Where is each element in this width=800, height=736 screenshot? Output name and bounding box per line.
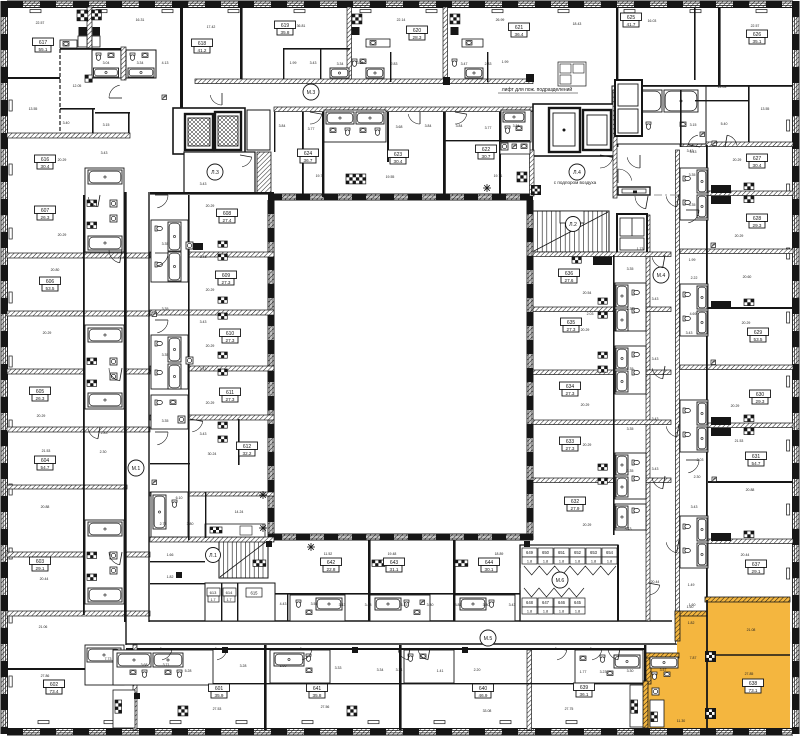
- svg-text:651: 651: [558, 550, 566, 555]
- svg-text:27.86: 27.86: [41, 674, 50, 678]
- svg-text:3.43: 3.43: [652, 297, 659, 301]
- svg-text:26.3: 26.3: [41, 215, 50, 220]
- svg-text:3.43: 3.43: [691, 505, 698, 509]
- svg-text:3.34: 3.34: [513, 124, 520, 128]
- svg-text:649: 649: [526, 550, 534, 555]
- svg-text:27.3: 27.3: [226, 338, 235, 343]
- svg-text:27.3: 27.3: [567, 327, 576, 332]
- svg-text:2.83: 2.83: [391, 62, 398, 66]
- svg-text:608: 608: [223, 211, 232, 217]
- svg-text:3.04: 3.04: [103, 61, 110, 65]
- svg-text:1.82: 1.82: [688, 621, 695, 625]
- svg-text:11.52: 11.52: [324, 552, 333, 556]
- svg-text:35.9: 35.9: [215, 693, 224, 698]
- svg-text:648: 648: [526, 600, 534, 605]
- svg-text:3.23: 3.23: [600, 670, 607, 674]
- svg-text:20.80: 20.80: [51, 268, 60, 272]
- svg-text:19.71: 19.71: [316, 174, 325, 178]
- svg-text:22.57: 22.57: [36, 21, 45, 25]
- svg-text:Л.3: Л.3: [211, 170, 219, 176]
- svg-text:3.34: 3.34: [337, 62, 344, 66]
- svg-text:18.89: 18.89: [495, 552, 504, 556]
- svg-text:636: 636: [565, 271, 574, 277]
- svg-text:53.5: 53.5: [46, 286, 55, 291]
- svg-text:2.03: 2.03: [587, 312, 594, 316]
- svg-text:13.55: 13.55: [761, 107, 770, 111]
- svg-text:16.03: 16.03: [648, 19, 657, 23]
- svg-text:640: 640: [479, 686, 488, 692]
- svg-text:3.77: 3.77: [308, 127, 315, 131]
- svg-text:3.43: 3.43: [339, 603, 346, 607]
- svg-text:1.99: 1.99: [502, 60, 509, 64]
- svg-text:1.7: 1.7: [211, 598, 216, 602]
- svg-text:3.89: 3.89: [455, 603, 462, 607]
- svg-text:33.08: 33.08: [483, 709, 492, 713]
- svg-text:20.44: 20.44: [40, 577, 49, 581]
- svg-text:20.29: 20.29: [731, 404, 740, 408]
- svg-text:19.71: 19.71: [494, 174, 503, 178]
- svg-text:20.88: 20.88: [41, 505, 50, 509]
- svg-text:лифт для пож. подразделений: лифт для пож. подразделений: [502, 86, 573, 93]
- svg-text:2.83: 2.83: [101, 431, 108, 435]
- svg-text:36.7: 36.7: [304, 158, 313, 163]
- svg-text:3.43: 3.43: [652, 417, 659, 421]
- svg-text:3.80: 3.80: [187, 522, 194, 526]
- svg-text:623: 623: [394, 152, 403, 158]
- svg-text:17.42: 17.42: [207, 25, 216, 29]
- svg-text:2.78: 2.78: [160, 522, 167, 526]
- svg-text:618: 618: [198, 41, 207, 47]
- svg-text:20.29: 20.29: [581, 403, 590, 407]
- svg-text:3.47: 3.47: [461, 62, 468, 66]
- svg-text:3.40: 3.40: [63, 121, 70, 125]
- svg-text:20.29: 20.29: [37, 414, 46, 418]
- svg-text:3.35: 3.35: [162, 419, 169, 423]
- svg-text:21.06: 21.06: [39, 625, 48, 629]
- svg-text:12.05: 12.05: [73, 84, 82, 88]
- svg-text:646: 646: [558, 600, 566, 605]
- svg-text:2.30: 2.30: [694, 475, 701, 479]
- svg-text:27.3: 27.3: [222, 280, 231, 285]
- svg-text:4.33: 4.33: [401, 603, 408, 607]
- svg-text:20.29: 20.29: [583, 523, 592, 527]
- svg-text:16.31: 16.31: [136, 18, 145, 22]
- svg-text:1.8: 1.8: [543, 610, 548, 614]
- svg-text:1.77: 1.77: [580, 670, 587, 674]
- svg-text:1.82: 1.82: [167, 575, 174, 579]
- svg-text:27.9: 27.9: [571, 506, 580, 511]
- svg-text:612: 612: [243, 444, 252, 450]
- svg-text:628: 628: [753, 216, 762, 222]
- svg-text:605: 605: [36, 389, 45, 395]
- svg-text:27.3: 27.3: [566, 391, 575, 396]
- svg-text:638: 638: [749, 681, 758, 687]
- svg-text:1.8: 1.8: [559, 560, 564, 564]
- svg-text:629: 629: [754, 330, 763, 336]
- svg-text:32.2: 32.2: [243, 451, 252, 456]
- svg-text:3.28: 3.28: [240, 664, 247, 668]
- svg-text:627: 627: [753, 156, 762, 162]
- svg-text:31.1: 31.1: [390, 567, 399, 572]
- svg-text:20.29: 20.29: [43, 331, 52, 335]
- svg-text:54.7: 54.7: [41, 465, 50, 470]
- svg-text:3.43: 3.43: [652, 467, 659, 471]
- svg-text:3.43: 3.43: [310, 61, 317, 65]
- svg-text:3.84: 3.84: [279, 124, 286, 128]
- svg-text:602: 602: [50, 682, 59, 688]
- svg-text:1.8: 1.8: [559, 610, 564, 614]
- svg-text:73.1: 73.1: [749, 688, 758, 693]
- svg-text:611: 611: [226, 390, 234, 396]
- svg-text:3.43: 3.43: [509, 603, 516, 607]
- svg-text:609: 609: [222, 273, 231, 279]
- svg-text:614: 614: [226, 590, 233, 595]
- svg-text:652: 652: [574, 550, 582, 555]
- svg-text:1.8: 1.8: [575, 610, 580, 614]
- svg-text:1.7: 1.7: [227, 598, 232, 602]
- svg-text:3.43: 3.43: [200, 320, 207, 324]
- svg-text:55.1: 55.1: [39, 47, 48, 52]
- svg-text:619: 619: [281, 23, 290, 29]
- svg-text:3.33: 3.33: [335, 666, 342, 670]
- svg-text:30.24: 30.24: [208, 452, 217, 456]
- svg-text:3.43: 3.43: [200, 182, 207, 186]
- svg-text:27.75: 27.75: [565, 707, 574, 711]
- svg-text:1.41: 1.41: [437, 669, 444, 673]
- svg-text:1.8: 1.8: [543, 560, 548, 564]
- svg-text:20.29: 20.29: [206, 204, 215, 208]
- svg-text:1.99: 1.99: [689, 258, 696, 262]
- svg-text:29.3: 29.3: [756, 399, 765, 404]
- svg-text:73.4: 73.4: [50, 689, 59, 694]
- svg-text:1.60: 1.60: [689, 603, 696, 607]
- svg-text:20.29: 20.29: [58, 233, 67, 237]
- svg-text:20.29: 20.29: [206, 401, 215, 405]
- svg-text:622: 622: [482, 147, 491, 153]
- svg-text:4.13: 4.13: [162, 61, 169, 65]
- svg-text:19.48: 19.48: [388, 552, 397, 556]
- svg-text:3.35: 3.35: [627, 367, 634, 371]
- svg-text:616: 616: [41, 157, 50, 163]
- svg-text:601: 601: [215, 686, 224, 692]
- svg-text:641: 641: [313, 686, 322, 692]
- svg-text:613: 613: [210, 590, 217, 595]
- svg-text:1.90: 1.90: [280, 664, 287, 668]
- svg-text:27.53: 27.53: [213, 707, 222, 711]
- svg-text:631: 631: [752, 454, 761, 460]
- svg-text:21.53: 21.53: [735, 439, 744, 443]
- svg-text:2.20: 2.20: [474, 668, 481, 672]
- svg-text:7.73: 7.73: [105, 657, 112, 661]
- svg-text:30.4: 30.4: [394, 159, 403, 164]
- svg-text:624: 624: [304, 151, 313, 157]
- svg-text:1.8: 1.8: [527, 560, 532, 564]
- svg-text:20.29: 20.29: [735, 234, 744, 238]
- svg-text:3.84: 3.84: [425, 124, 432, 128]
- svg-text:29.1: 29.1: [36, 566, 45, 571]
- svg-text:3.43: 3.43: [686, 331, 693, 335]
- svg-text:20.88: 20.88: [746, 488, 755, 492]
- svg-text:20.54: 20.54: [583, 291, 592, 295]
- svg-text:3.30: 3.30: [627, 669, 634, 673]
- svg-text:35.8: 35.8: [313, 693, 322, 698]
- svg-text:20.44: 20.44: [741, 553, 750, 557]
- svg-text:22.57: 22.57: [751, 24, 760, 28]
- svg-text:30.1: 30.1: [485, 567, 494, 572]
- svg-text:644: 644: [485, 560, 494, 566]
- svg-text:3.68: 3.68: [141, 663, 148, 667]
- svg-text:3.15: 3.15: [103, 123, 110, 127]
- svg-text:1.66: 1.66: [167, 553, 174, 557]
- svg-text:21.08: 21.08: [747, 628, 756, 632]
- svg-text:639: 639: [580, 685, 589, 691]
- svg-text:20.29: 20.29: [733, 158, 742, 162]
- svg-text:30.7: 30.7: [482, 154, 491, 159]
- svg-text:7.87: 7.87: [690, 656, 697, 660]
- svg-text:35.1: 35.1: [753, 39, 762, 44]
- svg-text:3.68: 3.68: [396, 125, 403, 129]
- svg-text:1.99: 1.99: [290, 61, 297, 65]
- svg-text:М.1: М.1: [132, 466, 141, 472]
- svg-text:М.6: М.6: [556, 578, 565, 584]
- svg-text:13.55: 13.55: [29, 107, 38, 111]
- svg-text:642: 642: [327, 560, 336, 566]
- svg-text:3.15: 3.15: [690, 123, 697, 127]
- svg-text:20.60: 20.60: [743, 275, 752, 279]
- svg-text:28.3: 28.3: [413, 35, 422, 40]
- svg-text:610: 610: [226, 331, 235, 337]
- svg-text:630: 630: [756, 392, 765, 398]
- svg-text:3.43: 3.43: [652, 357, 659, 361]
- svg-text:650: 650: [542, 550, 550, 555]
- svg-text:3.43: 3.43: [200, 432, 207, 436]
- svg-text:3.35: 3.35: [689, 173, 696, 177]
- svg-text:3.35: 3.35: [689, 203, 696, 207]
- svg-text:27.56: 27.56: [321, 705, 330, 709]
- svg-text:18.43: 18.43: [573, 22, 582, 26]
- svg-text:3.34: 3.34: [377, 668, 384, 672]
- svg-text:635: 635: [567, 320, 576, 326]
- svg-text:27.6: 27.6: [565, 278, 574, 283]
- svg-text:54.7: 54.7: [752, 461, 761, 466]
- svg-text:20.29: 20.29: [58, 158, 67, 162]
- svg-text:3.35: 3.35: [627, 469, 634, 473]
- svg-text:3.80: 3.80: [427, 603, 434, 607]
- svg-text:637: 637: [752, 562, 761, 568]
- svg-text:22.8: 22.8: [327, 567, 336, 572]
- svg-text:3.43: 3.43: [200, 367, 207, 371]
- svg-text:27.85: 27.85: [745, 672, 754, 676]
- svg-text:М.5: М.5: [484, 636, 493, 642]
- svg-text:М.4: М.4: [657, 273, 666, 279]
- svg-text:Л.4: Л.4: [573, 170, 581, 176]
- svg-text:3.57: 3.57: [660, 668, 667, 672]
- svg-text:604: 604: [41, 458, 50, 464]
- svg-text:4.43: 4.43: [280, 602, 287, 606]
- svg-text:3.51: 3.51: [311, 602, 318, 606]
- svg-text:625: 625: [627, 15, 636, 21]
- svg-text:Л.1: Л.1: [209, 553, 217, 559]
- svg-text:633: 633: [566, 439, 575, 445]
- svg-text:654: 654: [606, 550, 614, 555]
- svg-text:53.5: 53.5: [754, 337, 763, 342]
- svg-text:29.3: 29.3: [753, 223, 762, 228]
- svg-text:607: 607: [41, 208, 50, 214]
- svg-text:1.73: 1.73: [637, 247, 644, 251]
- svg-text:26.99: 26.99: [496, 18, 505, 22]
- svg-text:3.43: 3.43: [365, 603, 372, 607]
- svg-text:36.1: 36.1: [580, 692, 589, 697]
- svg-text:3.43: 3.43: [101, 151, 108, 155]
- svg-text:36.4: 36.4: [515, 32, 524, 37]
- svg-text:647: 647: [542, 600, 550, 605]
- svg-text:27.3: 27.3: [226, 397, 235, 402]
- svg-text:3.34: 3.34: [137, 61, 144, 65]
- svg-text:3.34: 3.34: [396, 668, 403, 672]
- svg-text:20.29: 20.29: [206, 344, 215, 348]
- svg-text:3.35: 3.35: [162, 242, 169, 246]
- svg-text:46.9: 46.9: [479, 693, 488, 698]
- svg-text:20.29: 20.29: [206, 288, 215, 292]
- svg-text:12.03: 12.03: [718, 85, 727, 89]
- svg-text:14.24: 14.24: [235, 510, 244, 514]
- svg-text:11.30: 11.30: [677, 719, 686, 723]
- svg-text:20.29: 20.29: [583, 443, 592, 447]
- svg-text:26.3: 26.3: [36, 396, 45, 401]
- svg-text:606: 606: [46, 279, 55, 285]
- svg-text:30.4: 30.4: [753, 163, 762, 168]
- svg-text:615: 615: [251, 591, 259, 596]
- svg-text:3.43: 3.43: [200, 255, 207, 259]
- svg-text:5.28: 5.28: [185, 669, 192, 673]
- svg-text:1.8: 1.8: [607, 560, 612, 564]
- svg-text:3.43: 3.43: [625, 527, 632, 531]
- svg-text:3.56: 3.56: [357, 61, 364, 65]
- svg-text:М.3: М.3: [307, 90, 316, 96]
- svg-text:1.8: 1.8: [575, 560, 580, 564]
- svg-text:21.53: 21.53: [42, 449, 51, 453]
- svg-text:632: 632: [571, 499, 580, 505]
- svg-text:645: 645: [574, 600, 582, 605]
- svg-text:20.29: 20.29: [742, 321, 751, 325]
- svg-text:27.3: 27.3: [566, 446, 575, 451]
- svg-text:3.35: 3.35: [627, 267, 634, 271]
- svg-text:1.8: 1.8: [591, 560, 596, 564]
- svg-text:653: 653: [590, 550, 598, 555]
- svg-text:19.55: 19.55: [386, 175, 395, 179]
- svg-text:4.69: 4.69: [690, 312, 697, 316]
- svg-text:3.35: 3.35: [162, 353, 169, 357]
- svg-text:3.35: 3.35: [627, 307, 634, 311]
- svg-text:634: 634: [566, 384, 575, 390]
- svg-text:35.8: 35.8: [281, 30, 290, 35]
- svg-text:643: 643: [390, 560, 399, 566]
- svg-text:3.77: 3.77: [485, 126, 492, 130]
- svg-text:3.35: 3.35: [627, 427, 634, 431]
- svg-text:621: 621: [515, 25, 524, 31]
- svg-text:617: 617: [39, 40, 48, 46]
- svg-text:36.81: 36.81: [297, 24, 306, 28]
- svg-text:1.49: 1.49: [688, 583, 695, 587]
- svg-text:27.4: 27.4: [223, 218, 232, 223]
- svg-text:603: 603: [36, 559, 45, 565]
- svg-text:41.7: 41.7: [627, 22, 636, 27]
- svg-text:Л.2: Л.2: [569, 222, 577, 228]
- svg-text:3.71: 3.71: [163, 663, 170, 667]
- svg-text:1.8: 1.8: [527, 610, 532, 614]
- svg-text:2.30: 2.30: [100, 450, 107, 454]
- svg-text:3.43: 3.43: [690, 150, 697, 154]
- svg-text:626: 626: [753, 32, 762, 38]
- svg-text:с подпором воздуха: с подпором воздуха: [554, 180, 597, 185]
- svg-text:620: 620: [413, 28, 422, 34]
- svg-text:3.80: 3.80: [483, 603, 490, 607]
- svg-text:29.1: 29.1: [752, 569, 761, 574]
- svg-text:20.29: 20.29: [581, 328, 590, 332]
- svg-text:22.14: 22.14: [397, 18, 406, 22]
- svg-text:2.22: 2.22: [691, 276, 698, 280]
- svg-text:41.2: 41.2: [198, 48, 207, 53]
- svg-text:30.4: 30.4: [41, 164, 50, 169]
- svg-text:5.40: 5.40: [721, 122, 728, 126]
- svg-text:3.84: 3.84: [456, 124, 463, 128]
- svg-text:6.10: 6.10: [176, 496, 183, 500]
- svg-text:3.35: 3.35: [162, 307, 169, 311]
